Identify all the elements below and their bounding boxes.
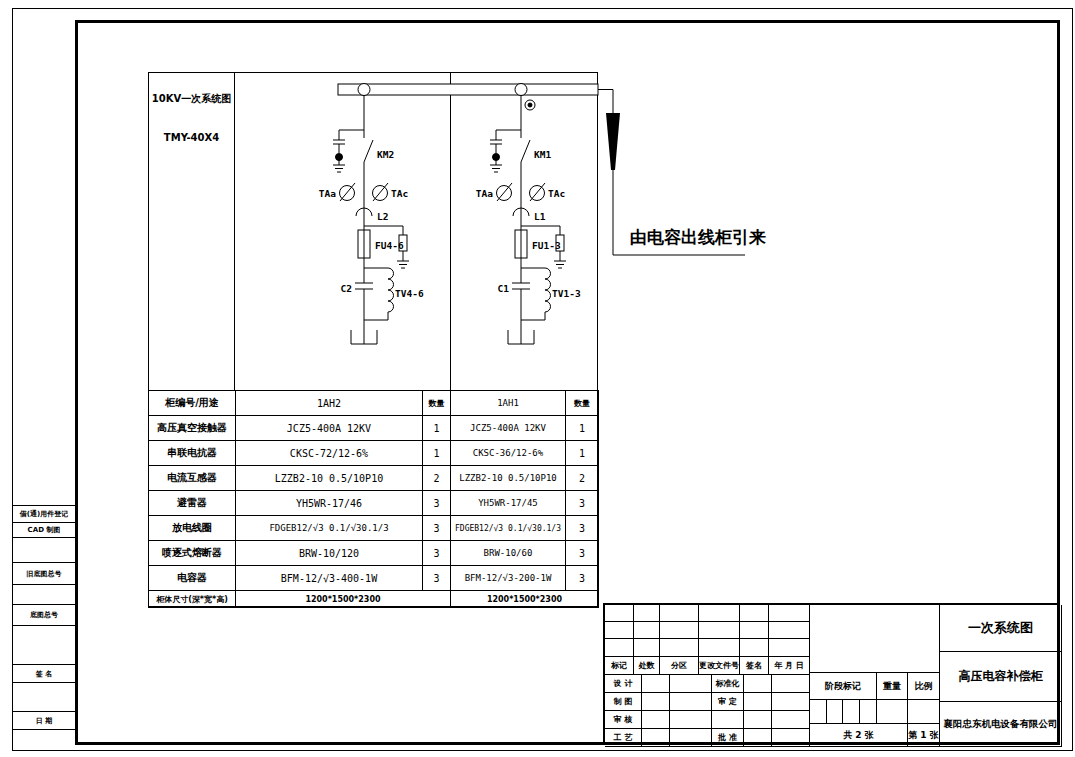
spec-cell: CKSC-36/12-6% [451,441,566,466]
one-line-circuit-diagram: KM2 TAa TAc L2 FU4-6 C2 TV4-6 KM1 TAa TA… [148,72,910,402]
discharge-coil-label: TV1-3 [552,288,581,299]
scale-label: 比例 [908,673,940,700]
company-name: 襄阳忠东机电设备有限公司 [940,702,1062,747]
sheet-count-row: 共 2 张 第 1 张 [810,724,940,747]
table-header-bay2: 1AH2 [236,391,423,416]
ct-c-label: TAc [391,188,408,199]
title-block: 标记 处数 分区 更改文件号 签名 年 月 日 设 计 标准化 制 图 审 定 … [603,603,1060,745]
discharge-coil-icon [388,268,394,312]
margin-label-date: 日 期 [13,711,75,730]
margin-label-signature: 签 名 [13,664,75,683]
component-label: 避雷器 [149,491,236,516]
margin-label-base-no: 底图总号 [13,604,75,626]
spec-cell: BRW-10/120 [236,541,423,566]
table-header-bay1: 1AH1 [451,391,566,416]
spec-cell: JCZ5-400A 12KV [451,416,566,441]
weight-label: 重量 [877,673,908,700]
busbar-tap-icon [358,84,370,96]
table-header-qty: 数量 [566,391,599,416]
live-display-icon [493,154,500,161]
cabinet-size-value: 1200*1500*2300 [451,591,599,608]
qty-cell: 2 [566,466,599,491]
contactor-icon [521,140,530,162]
cabinet-size-value: 1200*1500*2300 [236,591,451,608]
discharge-coil-icon [545,268,551,312]
margin-label-cad-draft: CAD 制图 [13,522,75,538]
cabinet-size-label: 柜体尺寸(深*宽*高) [149,591,236,608]
bay-1ah2-circuit [333,95,409,344]
rev-header-sign: 签名 [740,657,769,675]
reactor-label: L2 [377,211,388,222]
role-draft: 制 图 [605,693,642,711]
component-spec-table: 柜编号/用途 1AH2 数量 1AH1 数量 高压真空接触器 JCZ5-400A… [148,390,599,608]
bay-1ah1-circuit [490,95,566,344]
incoming-note: 由电容出线柜引来 [630,227,766,247]
role-examine: 审 定 [712,693,744,711]
stage-value-row [810,700,940,724]
table-header-label: 柜编号/用途 [149,391,236,416]
role-approve: 批 准 [712,729,744,747]
spec-cell: BRW-10/60 [451,541,566,566]
spec-cell: LZZB2-10 0.5/10P10 [236,466,423,491]
capacitor-label: C1 [498,283,510,294]
document-title: 一次系统图 [940,605,1062,652]
fuse-label: FU1-3 [532,240,561,251]
rev-header-mark: 标记 [605,657,634,675]
qty-cell: 3 [566,516,599,541]
spec-cell: JCZ5-400A 12KV [236,416,423,441]
rev-header-zone: 分区 [660,657,699,675]
revision-table: 标记 处数 分区 更改文件号 签名 年 月 日 [605,605,810,675]
sheet-number: 第 1 张 [908,724,940,747]
spec-cell: LZZB2-10 0.5/10P10 [451,466,566,491]
busbar [338,84,598,95]
rev-header-date: 年 月 日 [769,657,810,675]
ct-c-label: TAc [548,188,565,199]
spec-cell: BFM-12/√3-200-1W [451,566,566,591]
drawing-sheet: 借(通)用件登记 CAD 制图 旧底图总号 底图总号 签 名 日 期 10KV一… [0,0,1075,757]
spec-cell: FDGEB12/√3 0.1/√30.1/3 [451,516,566,541]
table-header-qty: 数量 [423,391,451,416]
spec-cell: CKSC-72/12-6% [236,441,423,466]
spec-cell: FDGEB12/√3 0.1/√30.1/3 [236,516,423,541]
margin-label-borrow-record: 借(通)用件登记 [13,505,75,523]
signature-table: 设 计 标准化 制 图 审 定 审 核 工 艺 批 准 [605,675,810,747]
qty-cell: 3 [566,541,599,566]
qty-cell: 3 [423,541,451,566]
busbar-tap-icon [515,84,527,96]
reactor-label: L1 [534,211,546,222]
component-label: 电流互感器 [149,466,236,491]
contactor-label: KM2 [377,149,394,160]
rev-header-count: 处数 [634,657,660,675]
stage-empty-cell [810,605,940,673]
sheet-total: 共 2 张 [810,724,908,747]
role-design: 设 计 [605,675,642,693]
qty-cell: 3 [423,516,451,541]
stage-mark-label: 阶段标记 [810,673,877,700]
role-standardization: 标准化 [712,675,744,693]
component-label: 串联电抗器 [149,441,236,466]
cable-terminal-icon [606,113,620,170]
fuse-label: FU4-6 [375,240,404,251]
ct-a-label: TAa [319,188,336,199]
qty-cell: 3 [566,566,599,591]
role-process: 工 艺 [605,729,642,747]
contactor-icon [364,140,373,162]
spec-cell: YH5WR-17/45 [451,491,566,516]
qty-cell: 1 [423,441,451,466]
component-label: 喷逐式熔断器 [149,541,236,566]
component-label: 高压真空接触器 [149,416,236,441]
qty-cell: 1 [566,416,599,441]
stage-header-row: 阶段标记 重量 比例 [810,673,940,700]
product-name: 高压电容补偿柜 [940,652,1062,702]
capacitor-label: C2 [341,283,352,294]
discharge-coil-label: TV4-6 [395,288,424,299]
qty-cell: 1 [423,416,451,441]
qty-cell: 2 [423,466,451,491]
spec-cell: YH5WR-17/46 [236,491,423,516]
role-check: 审 核 [605,711,642,729]
qty-cell: 3 [423,491,451,516]
component-label: 放电线圈 [149,516,236,541]
ct-a-label: TAa [476,188,493,199]
qty-cell: 1 [566,441,599,466]
margin-label-old-base-no: 旧底图总号 [13,562,75,585]
qty-cell: 3 [566,491,599,516]
contactor-label: KM1 [534,149,551,160]
rev-header-change-doc: 更改文件号 [699,657,740,675]
spec-cell: BFM-12/√3-400-1W [236,566,423,591]
qty-cell: 3 [423,566,451,591]
component-label: 电容器 [149,566,236,591]
live-display-icon [336,154,343,161]
